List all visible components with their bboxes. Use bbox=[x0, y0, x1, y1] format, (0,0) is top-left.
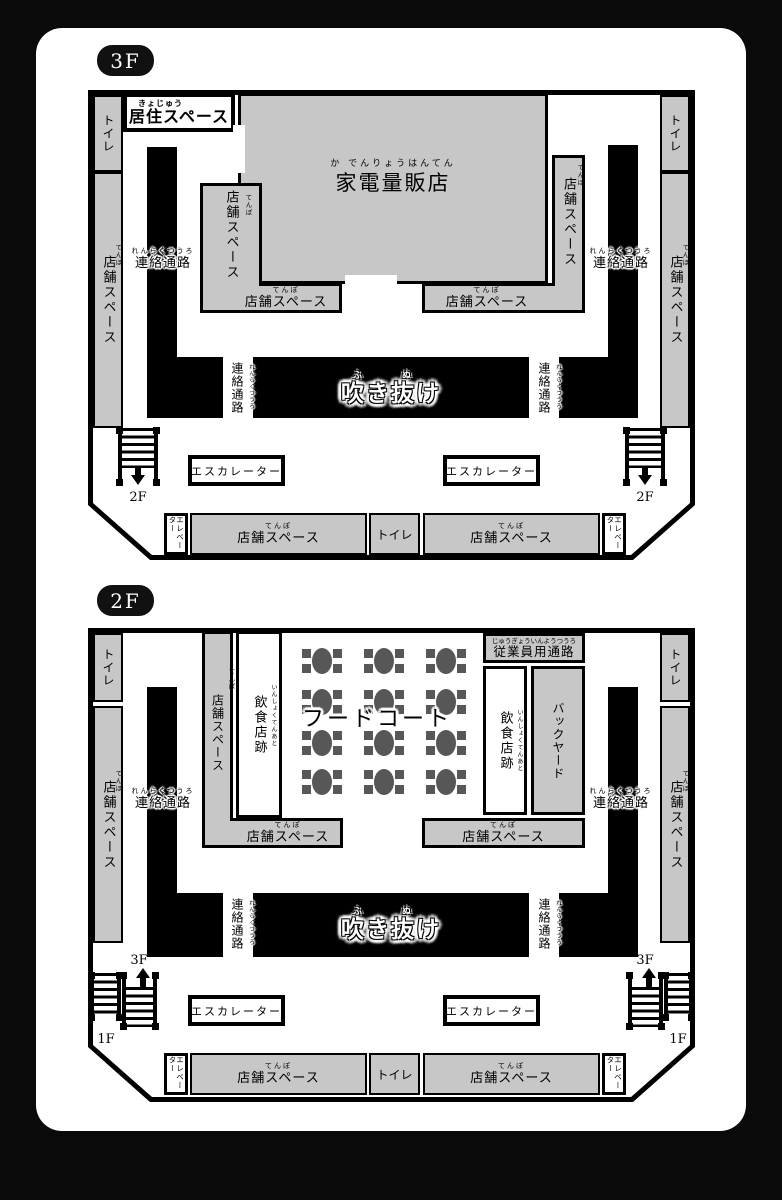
toilet-room-3f-bottom: トイレ bbox=[369, 513, 420, 555]
shop-space-3f-bottom-right: てんぽ 店舗スペース bbox=[423, 513, 600, 555]
shop-space-label: 店舗スペース bbox=[462, 831, 544, 844]
shop-space-furigana: てんぽ bbox=[228, 668, 235, 691]
shop-space-label: 店舗スペース bbox=[470, 1072, 552, 1085]
shop-space-furigana: てんぽ bbox=[245, 194, 252, 217]
shop-space-furigana: てんぽ bbox=[265, 1063, 292, 1070]
corridor-furigana: れんらくつうろ bbox=[248, 364, 254, 410]
table-icon bbox=[426, 767, 466, 797]
corridor-label-2f-left: れんらくつうろ 連絡通路 bbox=[133, 783, 193, 815]
corridor-2f-left-foot bbox=[147, 893, 223, 957]
corridor-label-3f-atrium-left: 連絡通路 れんらくつうろ bbox=[223, 356, 251, 420]
stairs-icon-2f-right-down bbox=[664, 973, 693, 1020]
corridor-label-2f-right: れんらくつうろ 連絡通路 bbox=[591, 783, 651, 815]
stairs-destination-label: 2F bbox=[122, 490, 154, 505]
floor-3-tag: 3F bbox=[97, 45, 154, 76]
corridor-label: 連絡通路 bbox=[593, 797, 649, 810]
arrow-down-icon bbox=[131, 466, 145, 486]
corridor-label-3f-right: れんらくつうろ 連絡通路 bbox=[591, 243, 651, 275]
toilet-label: トイレ bbox=[102, 648, 114, 687]
shop-space-label: 店舗スペース bbox=[562, 177, 575, 267]
table-icon bbox=[364, 646, 404, 676]
shop-space-label: 店舗スペース bbox=[470, 532, 552, 545]
toilet-label: トイレ bbox=[376, 526, 412, 543]
stairs-icon-2f-right-up bbox=[628, 973, 663, 1029]
corridor-label: 連絡通路 bbox=[538, 898, 550, 950]
arrow-down-icon bbox=[638, 466, 652, 486]
elevator-3f-right: エレベーター bbox=[602, 513, 626, 555]
toilet-room-3f-right: トイレ bbox=[660, 95, 690, 172]
shop-space-furigana: てんぽ bbox=[115, 770, 122, 793]
elevator-label: エレベーター bbox=[607, 1056, 622, 1092]
corridor-label-3f-left: れんらくつうろ 連絡通路 bbox=[133, 243, 193, 275]
elevator-label: エレベーター bbox=[169, 516, 184, 552]
electronics-store-room: か でんりょうはんてん 家電量販店 bbox=[238, 93, 548, 284]
restaurant-remains-furigana: いんしょくてんあと bbox=[270, 684, 276, 747]
door-opening bbox=[345, 275, 397, 290]
shop-space-label: 店舗スペース bbox=[446, 296, 528, 309]
shop-space-furigana: てんぽ bbox=[682, 244, 689, 267]
residential-label: 居住スペース bbox=[129, 109, 229, 125]
toilet-label: トイレ bbox=[102, 114, 114, 153]
shop-space-2f-bottom-left: てんぽ 店舗スペース bbox=[190, 1053, 367, 1095]
shop-space-label: 店舗スペース bbox=[245, 296, 327, 309]
elevator-label: エレベーター bbox=[169, 1056, 184, 1092]
escalator-label: エスカレーター bbox=[191, 463, 282, 479]
stairs-destination-label: 1F bbox=[90, 1032, 122, 1047]
floor-2-tag: 2F bbox=[97, 585, 154, 616]
door-opening bbox=[233, 125, 245, 173]
corridor-label: 連絡通路 bbox=[135, 797, 191, 810]
atrium-furigana-fu: ふ bbox=[353, 368, 362, 381]
stairs-destination-label: 3F bbox=[121, 953, 157, 968]
arrow-up-icon bbox=[136, 967, 150, 987]
corridor-label-2f-atrium-right: 連絡通路 れんらくつうろ bbox=[530, 892, 558, 956]
shop-space-label-horizontal: てんぽ 店舗スペース bbox=[233, 818, 343, 848]
shop-space-furigana: てんぽ bbox=[274, 822, 301, 829]
corridor-3f-right-foot bbox=[559, 357, 638, 418]
employee-corridor-room: じゅうぎょういんようつうろ 従業員用通路 bbox=[483, 633, 585, 663]
stairs-destination-label: 3F bbox=[627, 953, 663, 968]
shop-space-furigana: てんぽ bbox=[577, 164, 584, 187]
stairs-icon-2f-left-up bbox=[122, 973, 157, 1029]
atrium-label-3f: 吹き抜け ふ ぬ bbox=[331, 370, 451, 412]
shop-space-label: 店舗スペース bbox=[669, 780, 682, 870]
toilet-room-2f-left: トイレ bbox=[93, 633, 123, 702]
residential-space-room: きょじゅう 居住スペース bbox=[123, 93, 235, 132]
corridor-label: 連絡通路 bbox=[593, 257, 649, 270]
page: 3F 2F トイレ 店舗スペース てんぽ トイレ 店舗スペース てんぽ きょじゅ… bbox=[0, 0, 782, 1200]
corridor-label: 連絡通路 bbox=[538, 362, 550, 414]
escalator-3f-right: エスカレーター bbox=[443, 455, 540, 486]
shop-space-2f-bottom-right: てんぽ 店舗スペース bbox=[423, 1053, 600, 1095]
corridor-furigana: れんらくつうろ bbox=[590, 248, 653, 255]
table-icon bbox=[364, 767, 404, 797]
shop-space-label-vertical: 店舗スペース てんぽ bbox=[203, 186, 259, 284]
electronics-store-furigana: か でんりょうはんてん bbox=[330, 160, 455, 169]
corridor-label-3f-atrium-right: 連絡通路 れんらくつうろ bbox=[530, 356, 558, 420]
escalator-2f-right: エスカレーター bbox=[443, 995, 540, 1026]
shop-space-3f-right-column: 店舗スペース てんぽ bbox=[660, 172, 690, 428]
elevator-2f-left: エレベーター bbox=[164, 1053, 188, 1095]
table-icon bbox=[302, 646, 342, 676]
shop-space-label-horizontal: てんぽ 店舗スペース bbox=[230, 283, 342, 313]
toilet-label: トイレ bbox=[669, 648, 681, 687]
shop-space-label: 店舗スペース bbox=[669, 255, 682, 345]
atrium-furigana-nu: ぬ bbox=[402, 368, 411, 381]
corridor-furigana: れんらくつうろ bbox=[248, 900, 254, 946]
table-icon bbox=[426, 646, 466, 676]
restaurant-remains-label: 飲食店跡 bbox=[499, 711, 512, 771]
atrium-furigana-nu: ぬ bbox=[402, 904, 411, 917]
shop-space-furigana: てんぽ bbox=[682, 770, 689, 793]
toilet-room-2f-right: トイレ bbox=[660, 633, 690, 702]
electronics-store-label: 家電量販店 bbox=[335, 173, 450, 194]
food-court-label: フードコート bbox=[277, 700, 477, 734]
employee-corridor-label: 従業員用通路 bbox=[493, 646, 574, 659]
corridor-furigana: れんらくつうろ bbox=[132, 788, 195, 795]
restaurant-remains-left: 飲食店跡 いんしょくてんあと bbox=[236, 631, 282, 818]
shop-space-2f-left-column: 店舗スペース てんぽ bbox=[93, 706, 123, 943]
shop-space-furigana: てんぽ bbox=[272, 287, 299, 294]
floor-2-plan: トイレ 店舗スペース てんぽ トイレ 店舗スペース てんぽ 店舗スペース てんぽ… bbox=[88, 628, 695, 1102]
corridor-3f-left-foot bbox=[147, 357, 223, 418]
escalator-2f-left: エスカレーター bbox=[188, 995, 285, 1026]
corridor-furigana: れんらくつうろ bbox=[590, 788, 653, 795]
shop-space-furigana: てんぽ bbox=[115, 244, 122, 267]
elevator-2f-right: エレベーター bbox=[602, 1053, 626, 1095]
shop-space-furigana: てんぽ bbox=[498, 1063, 525, 1070]
elevator-3f-left: エレベーター bbox=[164, 513, 188, 555]
escalator-3f-left: エスカレーター bbox=[188, 455, 285, 486]
shop-space-2f-inner-right: てんぽ 店舗スペース bbox=[422, 818, 585, 848]
shop-space-label-vertical: 店舗スペース てんぽ bbox=[202, 658, 233, 808]
shop-space-label: 店舗スペース bbox=[247, 831, 329, 844]
toilet-room-2f-bottom: トイレ bbox=[369, 1053, 420, 1095]
escalator-label: エスカレーター bbox=[446, 463, 537, 479]
stairs-icon-2f-left-down bbox=[90, 973, 121, 1020]
shop-space-label: 店舗スペース bbox=[225, 190, 238, 280]
corridor-furigana: れんらくつうろ bbox=[132, 248, 195, 255]
corridor-label: 連絡通路 bbox=[231, 898, 243, 950]
shop-space-2f-right-column: 店舗スペース てんぽ bbox=[660, 706, 690, 943]
table-icon bbox=[302, 767, 342, 797]
stairs-icon-3f-right bbox=[625, 428, 665, 485]
corridor-furigana: れんらくつうろ bbox=[555, 900, 561, 946]
shop-space-furigana: てんぽ bbox=[490, 822, 517, 829]
stairs-destination-label: 2F bbox=[629, 490, 661, 505]
restaurant-remains-furigana: いんしょくてんあと bbox=[516, 709, 522, 772]
comic-panel-frame: 3F 2F トイレ 店舗スペース てんぽ トイレ 店舗スペース てんぽ きょじゅ… bbox=[36, 28, 746, 1131]
corridor-label-2f-atrium-left: 連絡通路 れんらくつうろ bbox=[223, 892, 251, 956]
backyard-room: バックヤード bbox=[531, 666, 585, 815]
shop-space-label: 店舗スペース bbox=[102, 255, 115, 345]
atrium-furigana-fu: ふ bbox=[353, 904, 362, 917]
shop-space-3f-left-column: 店舗スペース てんぽ bbox=[93, 172, 123, 428]
shop-space-label-vertical: 店舗スペース てんぽ bbox=[555, 158, 582, 286]
shop-space-3f-bottom-left: てんぽ 店舗スペース bbox=[190, 513, 367, 555]
toilet-label: トイレ bbox=[669, 114, 681, 153]
escalator-label: エスカレーター bbox=[191, 1003, 282, 1019]
corridor-label: 連絡通路 bbox=[231, 362, 243, 414]
corridor-label: 連絡通路 bbox=[135, 257, 191, 270]
shop-space-label: 店舗スペース bbox=[102, 780, 115, 870]
escalator-label: エスカレーター bbox=[446, 1003, 537, 1019]
shop-space-furigana: てんぽ bbox=[473, 287, 500, 294]
stairs-icon-3f-left bbox=[118, 428, 158, 485]
shop-space-label-horizontal: てんぽ 店舗スペース bbox=[422, 283, 552, 313]
arrow-up-icon bbox=[642, 967, 656, 987]
shop-space-label: 店舗スペース bbox=[237, 1072, 319, 1085]
atrium-label-2f: 吹き抜け ふ ぬ bbox=[331, 906, 451, 948]
corridor-2f-right-foot bbox=[559, 893, 638, 957]
shop-space-furigana: てんぽ bbox=[265, 523, 292, 530]
shop-space-label: 店舗スペース bbox=[212, 694, 224, 772]
restaurant-remains-right: 飲食店跡 いんしょくてんあと bbox=[483, 666, 527, 815]
restaurant-remains-label: 飲食店跡 bbox=[253, 695, 266, 755]
shop-space-label: 店舗スペース bbox=[237, 532, 319, 545]
corridor-furigana: れんらくつうろ bbox=[555, 364, 561, 410]
shop-space-furigana: てんぽ bbox=[498, 523, 525, 530]
elevator-label: エレベーター bbox=[607, 516, 622, 552]
stairs-destination-label: 1F bbox=[662, 1032, 694, 1047]
floor-3-plan: トイレ 店舗スペース てんぽ トイレ 店舗スペース てんぽ きょじゅう 居住スペ… bbox=[88, 90, 695, 560]
toilet-label: トイレ bbox=[376, 1066, 412, 1083]
backyard-label: バックヤード bbox=[552, 702, 564, 780]
toilet-room-3f-left: トイレ bbox=[93, 95, 123, 172]
